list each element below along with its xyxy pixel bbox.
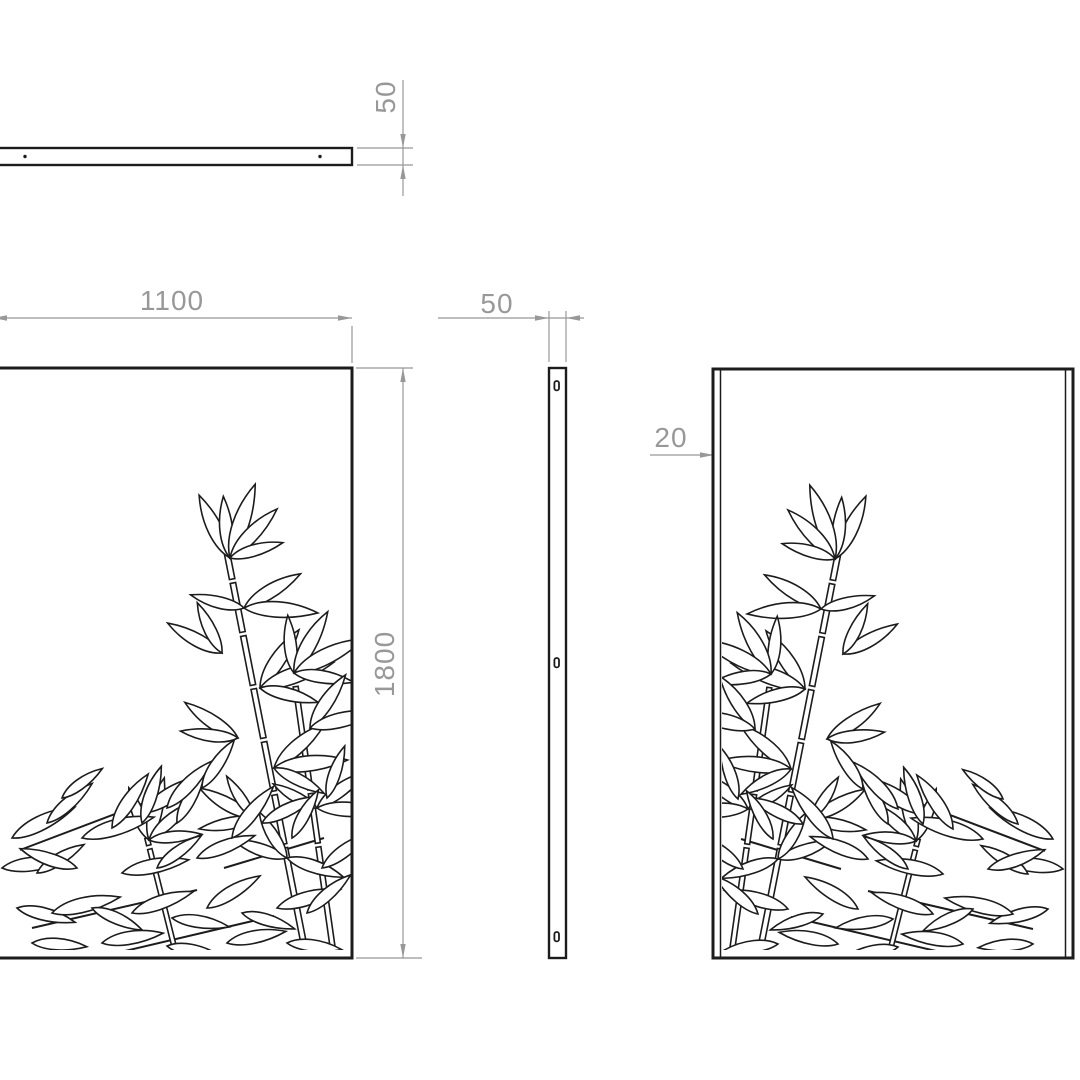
front-view-panel-right bbox=[680, 369, 1073, 963]
slot-bottom bbox=[554, 932, 559, 941]
front-view-panel bbox=[0, 368, 385, 962]
dimension-label-top-thickness: 50 bbox=[372, 80, 400, 113]
dimension-label-flange-depth: 20 bbox=[654, 424, 687, 452]
drawing-canvas bbox=[0, 0, 1080, 1080]
slot-middle bbox=[554, 658, 559, 667]
dimension-label-side-width: 50 bbox=[480, 290, 513, 318]
dimension-label-front-height: 1800 bbox=[371, 631, 399, 697]
mounting-hole-right bbox=[318, 155, 321, 158]
dim-front-width bbox=[0, 315, 352, 363]
side-view-bar bbox=[549, 368, 566, 958]
mounting-hole-left bbox=[23, 155, 26, 158]
top-view-bar bbox=[0, 148, 352, 165]
technical-drawing-sheet: 1100 1800 50 50 20 bbox=[0, 0, 1080, 1080]
dimension-label-front-width: 1100 bbox=[140, 287, 204, 315]
slot-top bbox=[554, 381, 559, 390]
